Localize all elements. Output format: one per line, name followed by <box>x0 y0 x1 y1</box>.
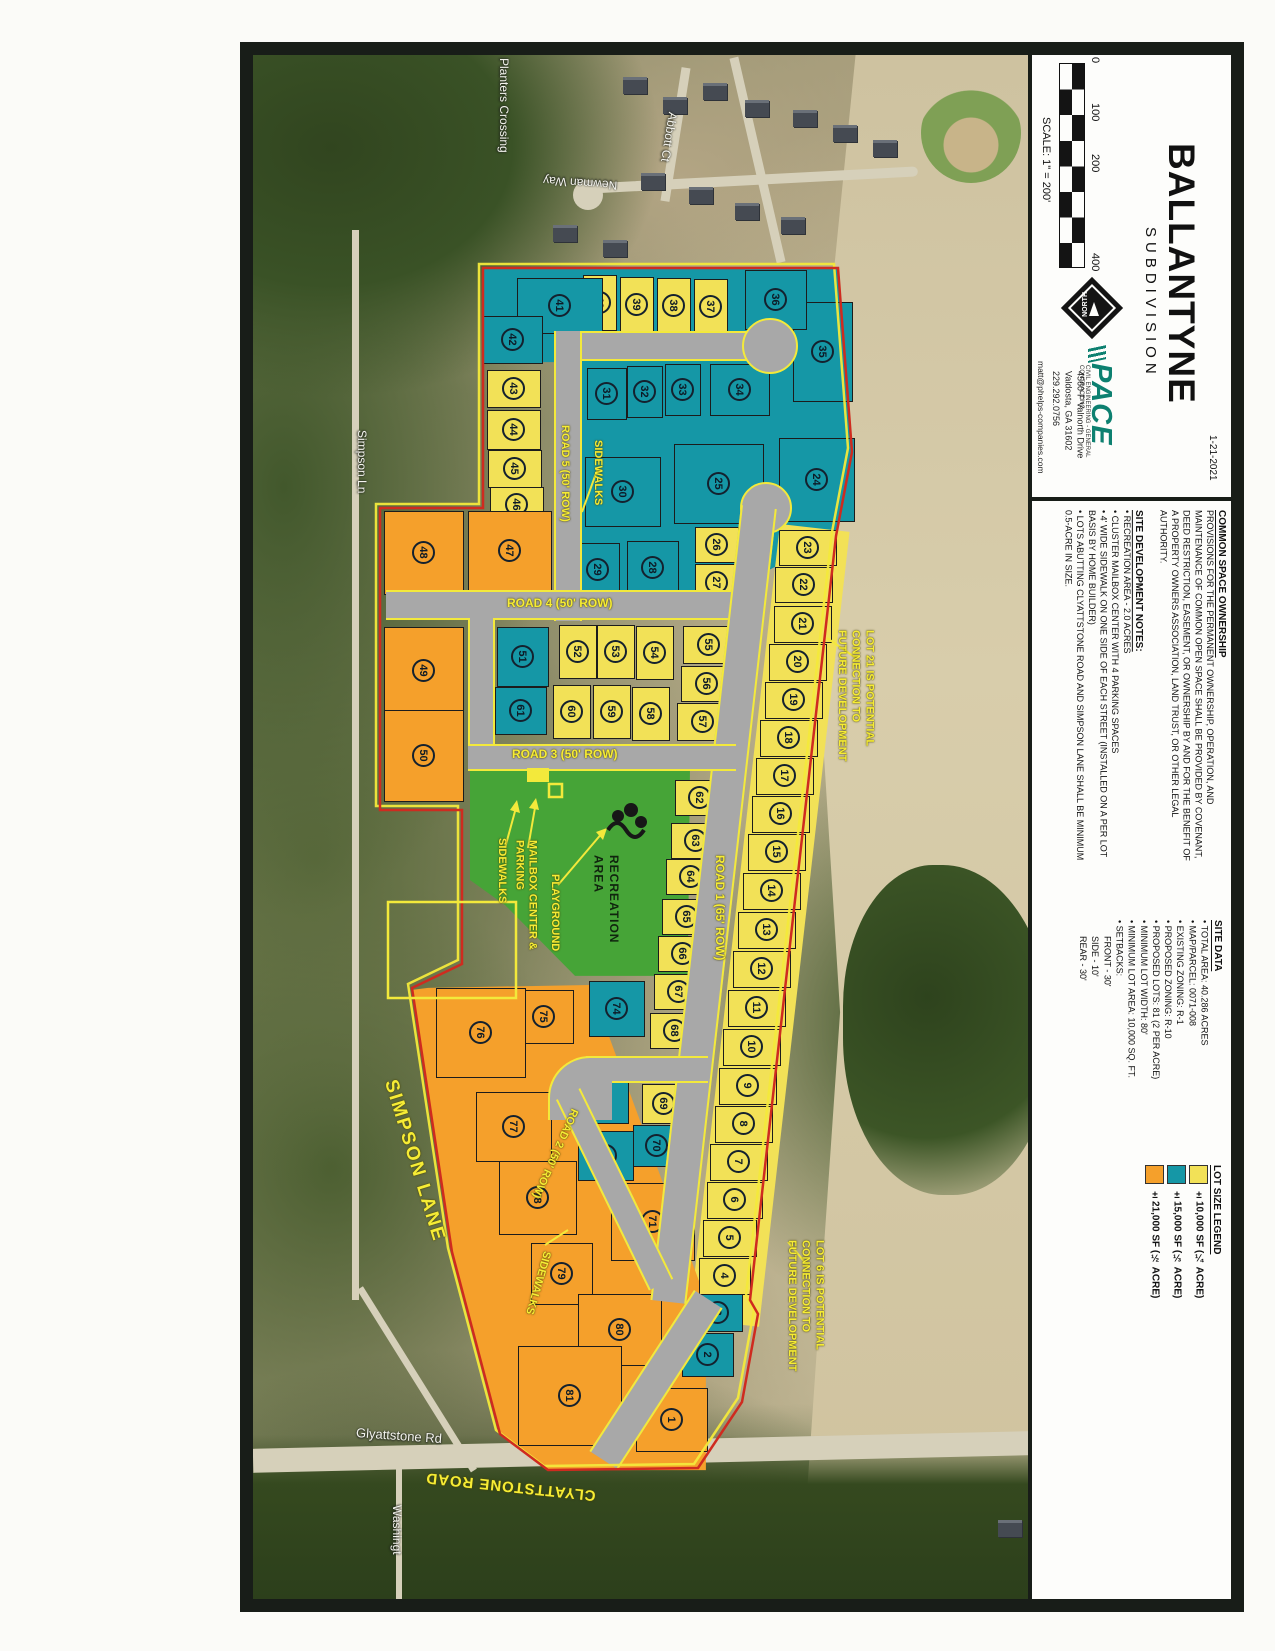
playground-label: PLAYGROUND <box>549 874 561 951</box>
firm-address-2: Valdosta, GA 31602 <box>1062 371 1074 458</box>
lot-parcel-31: 31 <box>587 368 627 420</box>
lot-number: 51 <box>511 645 534 668</box>
lot-parcel-51: 51 <box>497 627 549 687</box>
site-note: RECREATION AREA - 2.0 ACRES <box>1120 510 1132 862</box>
road-3-label: ROAD 3 (50' ROW) <box>512 747 618 761</box>
lot-number: 39 <box>625 293 648 316</box>
lot-parcel-13: 13 <box>738 912 796 949</box>
lot-number: 58 <box>639 702 662 725</box>
plat-sheet: 1234567891011121314151617181920212223242… <box>0 0 1275 1651</box>
site-data-item: EXISTING ZONING: R-1 <box>1174 920 1186 1135</box>
lot-parcel-6: 6 <box>707 1182 763 1219</box>
lot-parcel-44: 44 <box>487 410 541 450</box>
site-data-item: MINIMUM LOT AREA: 10,000 SQ. FT. <box>1126 920 1138 1135</box>
lot-number: 37 <box>699 295 722 318</box>
lot-parcel-45: 45 <box>488 450 542 488</box>
lot-number: 5 <box>718 1226 741 1249</box>
setback-item: FRONT - 30' <box>1101 920 1113 1135</box>
lot-number: 42 <box>501 328 524 351</box>
lot-parcel-22: 22 <box>775 567 833 603</box>
sheet-date: 1-21-2021 <box>1207 435 1218 481</box>
lot21-note-line: FUTURE DEVELOPMENT <box>834 630 848 761</box>
lot-number: 60 <box>560 700 583 723</box>
scale-tick-0: 0 <box>1089 57 1101 63</box>
legend-heading: LOT SIZE LEGEND <box>1211 1165 1222 1320</box>
setback-item: SIDE - 10' <box>1089 920 1101 1135</box>
lot-number: 49 <box>412 659 435 682</box>
lot6-note-line: CONNECTION TO <box>798 1240 812 1371</box>
firm-email: matt@phelps-companies.com <box>1036 361 1046 474</box>
lot-number: 57 <box>691 710 714 733</box>
lot-number: 28 <box>641 556 664 579</box>
lot-number: 44 <box>502 418 525 441</box>
tree-mass <box>843 865 1031 1195</box>
title-block: 0 100 200 400 SCALE: 1" = 200' NORTH PAC… <box>1032 55 1235 501</box>
lot-number: 17 <box>773 764 796 787</box>
lot-number: 43 <box>502 377 525 400</box>
lot-number: 45 <box>503 457 526 480</box>
lot-parcel-26: 26 <box>695 527 739 563</box>
lot-number: 47 <box>498 539 521 562</box>
lot-parcel-9: 9 <box>719 1068 777 1105</box>
north-label: NORTH <box>1082 292 1089 317</box>
lot-number: 55 <box>697 633 720 656</box>
lot-number: 59 <box>600 700 623 723</box>
lot-parcel-17: 17 <box>756 758 814 795</box>
lot-parcel-7: 7 <box>710 1144 768 1181</box>
road-5-upper <box>556 331 752 361</box>
lot-number: 70 <box>645 1134 668 1157</box>
lot-parcel-47: 47 <box>468 511 552 591</box>
legend-label: ±21,000 SF (½ ACRE) <box>1150 1190 1161 1298</box>
lot-parcel-21: 21 <box>774 606 832 643</box>
road-5-label: ROAD 5 (50' ROW) <box>559 425 571 522</box>
lot-number: 50 <box>412 744 435 767</box>
simpson-lane-road <box>352 230 359 1300</box>
lot-parcel-59: 59 <box>593 685 631 739</box>
lot-parcel-39: 39 <box>620 277 654 333</box>
lot-parcel-48: 48 <box>384 511 464 595</box>
lot-number: 75 <box>532 1005 555 1028</box>
lot-parcel-12: 12 <box>733 951 791 988</box>
lot-number: 79 <box>550 1262 573 1285</box>
lot-number: 22 <box>792 573 815 596</box>
lot-parcel-16: 16 <box>752 796 810 833</box>
lot-number: 32 <box>633 380 656 403</box>
site-data-heading: SITE DATA <box>1211 920 1225 1135</box>
lot-parcel-50: 50 <box>384 710 464 802</box>
lot-parcel-23: 23 <box>779 530 837 566</box>
lot-parcel-32: 32 <box>627 366 663 418</box>
lot-number: 74 <box>605 997 628 1020</box>
scale-bar <box>1059 63 1085 268</box>
lot-parcel-74: 74 <box>589 981 645 1037</box>
lot-parcel-14: 14 <box>743 873 801 910</box>
scale-tick-100: 100 <box>1089 103 1101 121</box>
road-4-label: ROAD 4 (50' ROW) <box>507 596 613 610</box>
recreation-area-label: RECREATION AREA <box>590 855 621 939</box>
lot-number: 80 <box>608 1318 631 1341</box>
lot-parcel-18: 18 <box>760 720 818 757</box>
site-data-item: PROPOSED LOTS: 81 (2 PER ACRE) <box>1150 920 1162 1135</box>
lot-parcel-20: 20 <box>769 644 827 681</box>
lot-parcel-8: 8 <box>715 1106 773 1143</box>
title-strip: 0 100 200 400 SCALE: 1" = 200' NORTH PAC… <box>1028 55 1231 1599</box>
lot-number: 31 <box>595 382 618 405</box>
lot-parcel-37: 37 <box>694 279 728 335</box>
lot-size-legend: LOT SIZE LEGEND ±10,000 SF (¼ ACRE) ±15,… <box>1094 1165 1222 1320</box>
lot-parcel-61: 61 <box>495 687 547 735</box>
lot-parcel-19: 19 <box>765 682 823 719</box>
firm-phone: 229.292.0756 <box>1050 371 1062 458</box>
lot-parcel-11: 11 <box>728 990 786 1027</box>
legend-swatch-yellow <box>1189 1165 1208 1184</box>
lot-number: 1 <box>660 1408 683 1431</box>
lot6-note-line: LOT 6 IS POTENTIAL <box>812 1240 826 1371</box>
north-arrow-pointer <box>1089 302 1099 316</box>
mailbox-center-label: MAILBOX CENTER & PARKING <box>513 840 538 962</box>
lot6-note: LOT 6 IS POTENTIAL CONNECTION TO FUTURE … <box>784 1240 825 1371</box>
ball-field <box>921 83 1021 183</box>
pace-logo-stripes <box>1088 345 1106 363</box>
lot21-note-line: CONNECTION TO <box>848 630 862 761</box>
lot-number: 20 <box>786 650 809 673</box>
lot-number: 24 <box>805 468 828 491</box>
site-data-item: MAP/PARCEL: 0071-008 <box>1186 920 1198 1135</box>
lot-number: 23 <box>796 536 819 559</box>
lot-parcel-52: 52 <box>559 625 597 679</box>
washington-label: Washingt <box>390 1505 404 1555</box>
site-note: LOTS ABUTTING CLYATTSTONE ROAD AND SIMPS… <box>1062 510 1085 862</box>
sheet-title: BALLANTYNE <box>1160 143 1202 404</box>
lot-number: 41 <box>548 294 571 317</box>
scale-tick-200: 200 <box>1089 154 1101 172</box>
lot-number: 12 <box>750 957 773 980</box>
sidewalks-label-mailbox: SIDEWALKS <box>496 838 508 903</box>
road-1-label: ROAD 1 (65' ROW) <box>713 855 727 961</box>
lot-parcel-60: 60 <box>553 685 591 739</box>
lot-number: 18 <box>777 726 800 749</box>
legend-entry: ±21,000 SF (½ ACRE) <box>1145 1165 1164 1320</box>
sheet-subtitle: SUBDIVISION <box>1142 227 1159 379</box>
lot-number: 21 <box>791 612 814 635</box>
lot-parcel-15: 15 <box>748 834 806 871</box>
lot6-note-line: FUTURE DEVELOPMENT <box>784 1240 798 1371</box>
lot-number: 16 <box>769 802 792 825</box>
lot-parcel-49: 49 <box>384 627 464 715</box>
lot-number: 7 <box>727 1150 750 1173</box>
lot-parcel-76: 76 <box>436 988 526 1078</box>
lot21-note-line: LOT 21 IS POTENTIAL <box>862 630 876 761</box>
setback-item: REAR - 30' <box>1077 920 1089 1135</box>
lot-number: 2 <box>696 1343 719 1366</box>
lot-number: 9 <box>736 1074 759 1097</box>
lot-parcel-5: 5 <box>703 1220 757 1257</box>
lot-number: 48 <box>412 541 435 564</box>
lot-parcel-38: 38 <box>657 278 691 334</box>
lot-parcel-29: 29 <box>576 543 620 597</box>
lot-number: 4 <box>713 1264 736 1287</box>
sidewalks-label-road5: SIDEWALKS <box>592 440 604 505</box>
site-data-section: SITE DATA TOTAL AREA: 40.286 ACRES MAP/P… <box>1042 920 1224 1135</box>
lot-number: 34 <box>728 378 751 401</box>
site-note: 4' WIDE SIDEWALK ON ONE SIDE OF EACH STR… <box>1085 510 1108 862</box>
site-notes-heading: SITE DEVELOPMENT NOTES: <box>1132 510 1145 862</box>
lot-parcel-54: 54 <box>636 626 674 680</box>
firm-address: 4560-F Valnorth Drive Valdosta, GA 31602… <box>1050 371 1086 458</box>
lot-number: 15 <box>765 840 788 863</box>
road-5-cul-de-sac <box>742 318 798 374</box>
lot-parcel-42: 42 <box>483 316 543 364</box>
legend-entry: ±10,000 SF (¼ ACRE) <box>1189 1165 1208 1320</box>
lot-parcel-4: 4 <box>699 1258 751 1295</box>
legend-swatch-teal <box>1167 1165 1186 1184</box>
common-space-heading: COMMON SPACE OWNERSHIP <box>1215 510 1228 862</box>
legend-swatch-orange <box>1145 1165 1164 1184</box>
legend-label: ±10,000 SF (¼ ACRE) <box>1194 1190 1205 1298</box>
site-data-item: MINIMUM LOT WIDTH: 80' <box>1138 920 1150 1135</box>
lot-number: 77 <box>502 1115 525 1138</box>
lot-number: 19 <box>782 688 805 711</box>
lot-number: 76 <box>469 1021 492 1044</box>
lot-number: 10 <box>740 1035 763 1058</box>
lot-number: 11 <box>745 996 768 1019</box>
lot-parcel-33: 33 <box>665 364 701 416</box>
lot-parcel-53: 53 <box>597 625 635 679</box>
scale-tick-400: 400 <box>1089 253 1101 271</box>
site-data-item: SETBACKS: <box>1113 920 1125 1135</box>
lot-number: 14 <box>760 879 783 902</box>
firm-address-1: 4560-F Valnorth Drive <box>1074 371 1086 458</box>
lot-parcel-58: 58 <box>632 687 670 741</box>
lot-number: 38 <box>662 294 685 317</box>
legend-entry: ±15,000 SF (⅓ ACRE) <box>1167 1165 1186 1320</box>
lot21-note: LOT 21 IS POTENTIAL CONNECTION TO FUTURE… <box>834 630 875 761</box>
lot-number: 56 <box>695 672 718 695</box>
lot-number: 8 <box>732 1112 755 1135</box>
site-note: CLUSTER MAILBOX CENTER WITH 4 PARKING SP… <box>1109 510 1121 862</box>
scale-label: SCALE: 1" = 200' <box>1040 117 1052 202</box>
lot-parcel-77: 77 <box>476 1092 552 1162</box>
lot-number: 54 <box>643 641 666 664</box>
lot-number: 30 <box>611 480 634 503</box>
lot-number: 81 <box>558 1384 581 1407</box>
lot-number: 6 <box>723 1188 746 1211</box>
legend-label: ±15,000 SF (⅓ ACRE) <box>1172 1190 1183 1298</box>
lot-number: 52 <box>566 640 589 663</box>
lot-number: 29 <box>586 558 609 581</box>
lot-number: 25 <box>707 472 730 495</box>
planters-crossing-road <box>729 57 785 264</box>
planters-crossing-label: Planters Crossing <box>497 58 511 153</box>
simpson-ln-label: Simpson Ln <box>355 430 369 493</box>
lot-parcel-10: 10 <box>723 1029 781 1066</box>
lot-parcel-28: 28 <box>627 541 679 595</box>
lot-number: 13 <box>755 918 778 941</box>
site-data-item: PROPOSED ZONING: R-10 <box>1162 920 1174 1135</box>
lot-number: 53 <box>604 640 627 663</box>
site-data-item: TOTAL AREA: 40.286 ACRES <box>1198 920 1210 1135</box>
lot-number: 36 <box>764 288 787 311</box>
lot-number: 33 <box>671 378 694 401</box>
lot-number: 26 <box>705 533 728 556</box>
notes-section: COMMON SPACE OWNERSHIP PROVISIONS FOR TH… <box>1040 510 1228 862</box>
common-space-body: PROVISIONS FOR THE PERMANENT OWNERSHIP, … <box>1157 510 1215 862</box>
lot-number: 61 <box>509 699 532 722</box>
road-3-connector <box>468 618 495 750</box>
lot-number: 35 <box>811 340 834 363</box>
lot-parcel-43: 43 <box>487 370 541 408</box>
